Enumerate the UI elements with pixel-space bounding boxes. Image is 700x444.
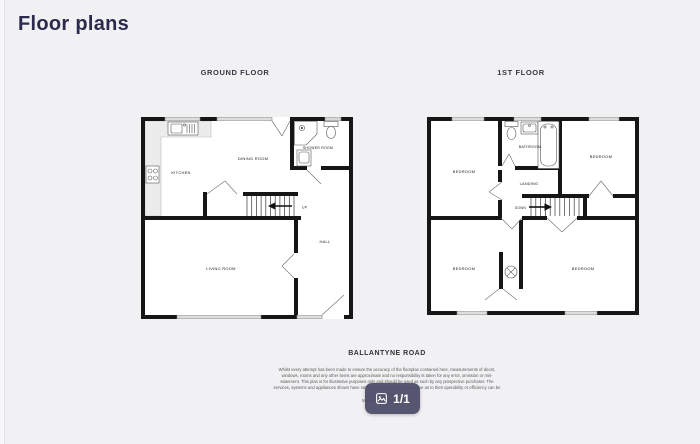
down-label: DOWN (515, 206, 527, 210)
cylinder-cupboard-icon (505, 266, 517, 278)
stove-icon (146, 166, 159, 183)
landing-label: LANDING (520, 182, 539, 186)
first-floor-title: 1ST FLOOR (421, 68, 621, 77)
page-indicator: 1/1 (365, 383, 420, 414)
hall-label: HALL (319, 239, 331, 244)
bathroom-sink-icon (521, 122, 538, 134)
ground-floor-title: GROUND FLOOR (135, 68, 335, 77)
page-count: 1/1 (393, 392, 410, 406)
up-label: UP (302, 206, 308, 210)
front-door-opening (272, 117, 290, 121)
bedroom-tl-label: BEDROOM (453, 169, 475, 174)
bedroom-tr-label: BEDROOM (590, 154, 612, 159)
back-door-opening (322, 315, 344, 319)
address-label: BALLANTYNE ROAD (272, 350, 502, 357)
bathroom-label: BATHROOM (519, 145, 542, 149)
photos-icon (375, 392, 388, 405)
floor-plans-page: Floor plans GROUND FLOOR 1ST FLOOR (0, 0, 700, 444)
shower-room-label: SHOWER ROOM (303, 146, 333, 150)
dining-room-label: DINING ROOM (238, 156, 268, 161)
basin-icon (297, 150, 311, 166)
bedroom-br-label: BEDROOM (572, 266, 594, 271)
kitchen-sink-icon (168, 122, 198, 135)
page-edge (0, 0, 5, 444)
bedroom-bl-label: BEDROOM (453, 266, 475, 271)
page-title: Floor plans (18, 13, 129, 36)
first-floor-plan: BATHROOM LANDING BEDROOM BEDROOM BEDROOM… (427, 117, 639, 320)
kitchen-label: KITCHEN (171, 170, 190, 175)
ground-floor-plan: KITCHEN DINING ROOM SHOWER ROOM LIVING R… (141, 117, 353, 324)
living-room-label: LIVING ROOM (206, 266, 235, 271)
